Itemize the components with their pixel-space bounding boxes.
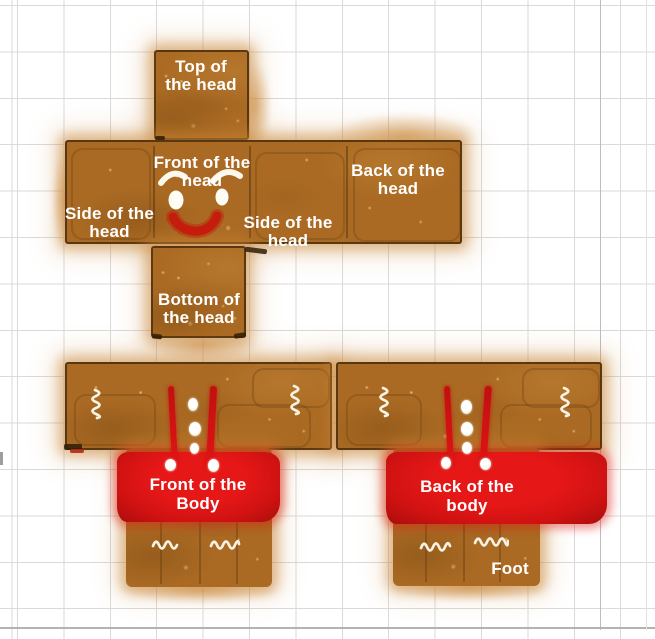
right-eye-icon	[216, 189, 229, 206]
body-back-button-2	[461, 422, 473, 436]
icing-squiggle-front-left-leg	[151, 537, 181, 551]
head-top-label: Top of the head	[151, 58, 251, 93]
body-front-button-3	[190, 443, 199, 454]
grid-dark-vertical-line	[600, 0, 601, 630]
cut-mark-top-square-left	[155, 136, 165, 140]
foot-label: Foot	[487, 560, 533, 578]
head-side-left-label: Side of the head	[62, 205, 157, 240]
head-bottom-label-line1: Bottom of	[149, 291, 249, 309]
body-back-right-lower-patch	[500, 404, 592, 448]
head-side-left-label-line2: head	[62, 223, 157, 241]
icing-squiggle-front-right-arm	[288, 384, 302, 416]
papercraft-template-canvas: Top of the head Front of the head Back o…	[0, 0, 655, 639]
body-back-label-line2: body	[412, 496, 522, 515]
head-side-right-label: Side of the head	[240, 214, 336, 249]
body-front-strap-dot-right	[208, 459, 219, 472]
body-front-label-line2: Body	[144, 494, 252, 513]
body-front-leg-seam-1	[160, 522, 162, 584]
body-back-strap-dot-right	[480, 458, 491, 470]
head-side-right-label-line2: head	[240, 232, 336, 250]
body-front-label-line1: Front of the	[144, 475, 252, 494]
left-eye-icon	[169, 191, 184, 210]
body-front-label: Front of the Body	[144, 475, 252, 513]
head-front-label-line2: head	[152, 172, 252, 190]
head-front-label-line1: Front of the	[152, 154, 252, 172]
foot-label-text: Foot	[487, 560, 533, 578]
body-back-label: Back of the body	[412, 477, 522, 515]
head-top-label-line1: Top of	[151, 58, 251, 76]
icing-squiggle-front-left-arm	[89, 388, 103, 420]
left-edge-mark	[0, 452, 3, 465]
body-front-leg-seam-3	[236, 522, 238, 584]
head-side-right-label-line1: Side of the	[240, 214, 336, 232]
grid-right-faint-line	[646, 0, 647, 630]
head-top-label-line2: the head	[151, 76, 251, 94]
body-front-button-1	[188, 398, 198, 411]
body-back-button-1	[461, 400, 472, 414]
icing-squiggle-back-left-leg	[419, 539, 452, 553]
head-back-label: Back of the head	[331, 162, 465, 197]
body-back-strap-dot-left	[441, 457, 451, 469]
body-back-label-line1: Back of the	[412, 477, 522, 496]
icing-squiggle-back-right-arm	[558, 386, 572, 418]
cut-mark-bottom-square-left	[152, 333, 162, 339]
icing-squiggle-back-left-arm	[377, 386, 391, 418]
head-front-label: Front of the head	[152, 154, 252, 189]
body-back-button-3	[462, 442, 472, 454]
head-bottom-label: Bottom of the head	[149, 291, 249, 326]
head-side-left-label-line1: Side of the	[62, 205, 157, 223]
grid-bottom-border-line	[0, 627, 655, 629]
body-front-leg-seam-2	[199, 522, 201, 584]
icing-squiggle-front-right-leg	[209, 536, 241, 551]
cut-mark-bar-left-red	[70, 449, 84, 453]
body-front-left-arm-patch	[74, 394, 156, 446]
body-front-strap-dot-left	[165, 459, 176, 471]
body-back-leg-seam-2	[463, 522, 465, 582]
head-back-label-line1: Back of the head	[331, 162, 465, 197]
head-bottom-label-line2: the head	[149, 309, 249, 327]
icing-squiggle-back-right-leg	[473, 533, 509, 549]
body-front-button-2	[189, 422, 201, 436]
